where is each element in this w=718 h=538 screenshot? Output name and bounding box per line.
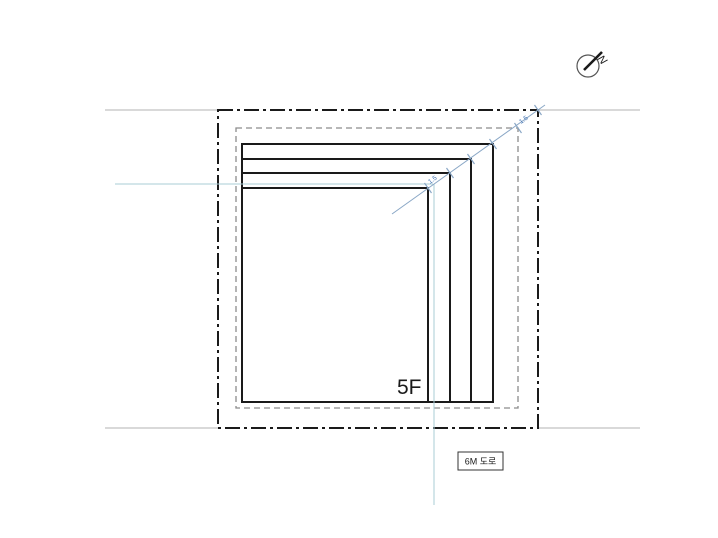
dimension-text-upper: 1.5 bbox=[518, 114, 530, 125]
floor-outline-5f bbox=[242, 188, 428, 402]
floor-outline-4f bbox=[242, 173, 450, 402]
floor-outlines bbox=[242, 144, 493, 402]
north-arrow-label: N bbox=[595, 53, 609, 67]
setback-dashed-line bbox=[236, 128, 518, 408]
floor-outline-3f bbox=[242, 159, 471, 402]
reference-planes bbox=[115, 184, 434, 505]
road-label: 6M 도로 bbox=[458, 452, 503, 470]
floor-outline-2f bbox=[242, 144, 493, 402]
dimension-text-lower: 1.5 bbox=[427, 174, 439, 185]
site-boundary-line bbox=[218, 110, 538, 428]
site-plan-drawing: 1.5 1.5 5F 6M 도로 N bbox=[0, 0, 718, 538]
floor-label-5f: 5F bbox=[397, 376, 422, 399]
north-arrow: N bbox=[577, 52, 609, 77]
boundary-extension-lines bbox=[105, 110, 640, 428]
road-label-text: 6M 도로 bbox=[465, 457, 497, 467]
